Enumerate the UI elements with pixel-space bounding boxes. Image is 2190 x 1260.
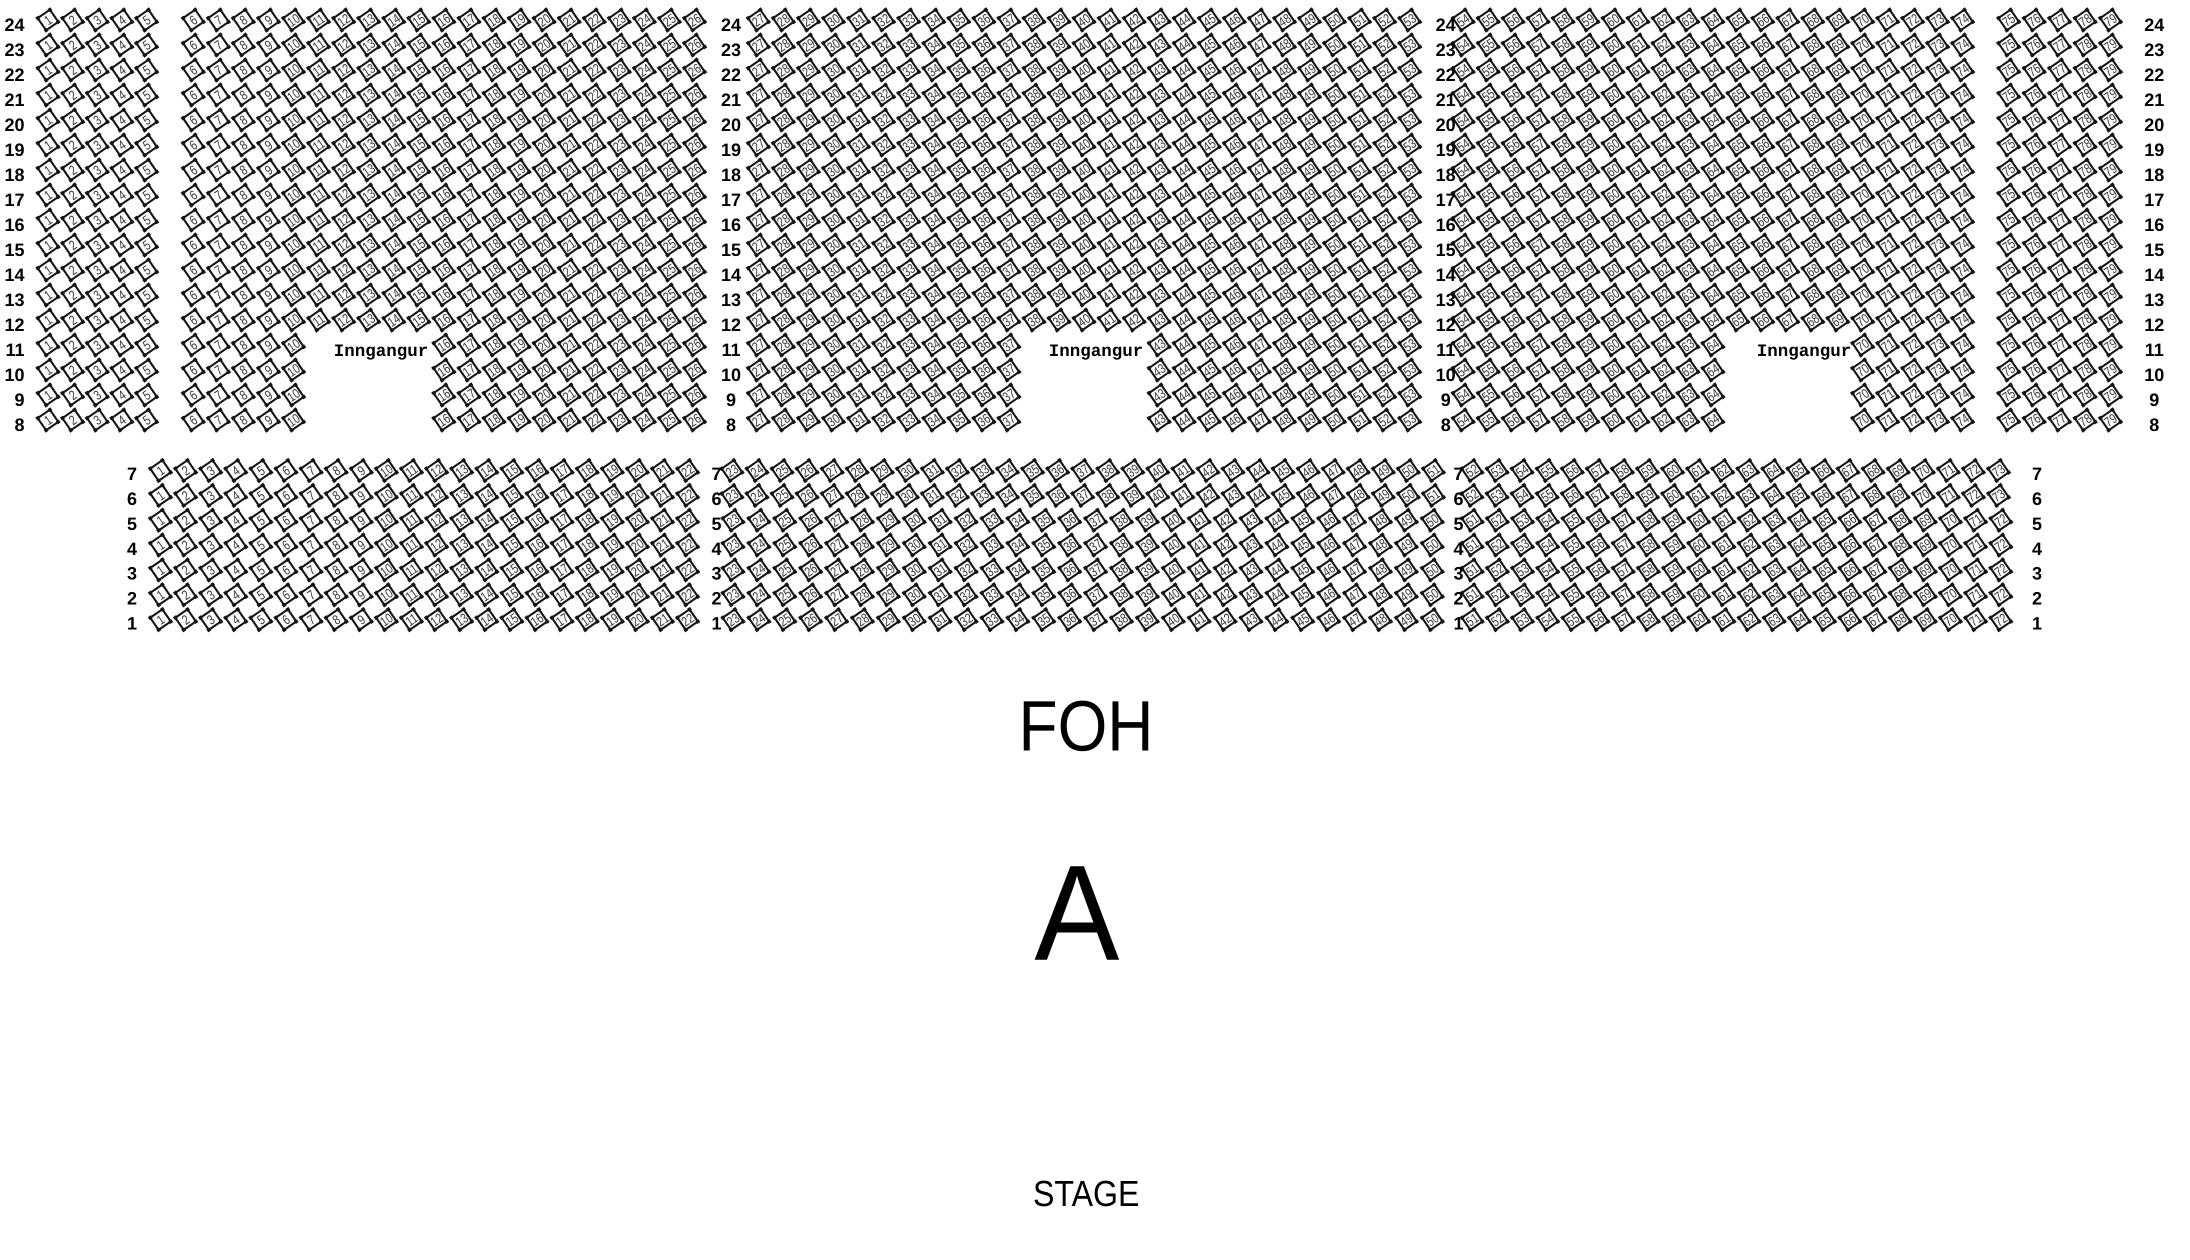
svg-text:8: 8	[726, 415, 736, 435]
svg-text:8: 8	[14, 415, 24, 435]
svg-text:17: 17	[2144, 190, 2164, 210]
svg-text:6: 6	[1453, 489, 1463, 509]
svg-text:7: 7	[711, 464, 721, 484]
svg-text:8: 8	[1441, 415, 1451, 435]
svg-text:19: 19	[1436, 140, 1456, 160]
svg-text:23: 23	[2144, 40, 2164, 60]
svg-text:Inngangur: Inngangur	[334, 342, 429, 362]
svg-text:6: 6	[127, 489, 137, 509]
svg-text:13: 13	[4, 290, 24, 310]
svg-text:24: 24	[2144, 15, 2164, 35]
svg-text:1: 1	[2032, 613, 2042, 633]
svg-text:11: 11	[1436, 340, 1455, 360]
svg-text:A: A	[1034, 837, 1119, 989]
svg-text:20: 20	[4, 115, 24, 135]
svg-text:11: 11	[5, 340, 24, 360]
svg-text:1: 1	[711, 613, 721, 633]
svg-text:13: 13	[2144, 290, 2164, 310]
svg-text:7: 7	[1453, 464, 1463, 484]
svg-text:21: 21	[2144, 90, 2164, 110]
svg-text:7: 7	[127, 464, 137, 484]
svg-text:22: 22	[4, 65, 24, 85]
svg-text:3: 3	[711, 564, 721, 584]
svg-text:15: 15	[721, 240, 741, 260]
svg-text:15: 15	[2144, 240, 2164, 260]
svg-text:15: 15	[4, 240, 24, 260]
svg-text:24: 24	[1436, 15, 1456, 35]
svg-text:13: 13	[1436, 290, 1456, 310]
svg-text:24: 24	[721, 15, 741, 35]
svg-text:19: 19	[2144, 140, 2164, 160]
svg-text:10: 10	[1436, 365, 1456, 385]
svg-text:19: 19	[4, 140, 24, 160]
svg-text:16: 16	[2144, 215, 2164, 235]
svg-text:Inngangur: Inngangur	[1757, 342, 1852, 362]
svg-text:6: 6	[2032, 489, 2042, 509]
svg-text:5: 5	[127, 514, 137, 534]
svg-text:12: 12	[4, 315, 24, 335]
svg-text:2: 2	[127, 589, 137, 609]
svg-text:15: 15	[1436, 240, 1456, 260]
svg-text:22: 22	[2144, 65, 2164, 85]
svg-text:13: 13	[721, 290, 741, 310]
svg-text:22: 22	[721, 65, 741, 85]
svg-text:11: 11	[721, 340, 740, 360]
svg-text:19: 19	[721, 140, 741, 160]
svg-text:10: 10	[4, 365, 24, 385]
svg-text:12: 12	[1436, 315, 1456, 335]
svg-text:18: 18	[2144, 165, 2164, 185]
svg-text:23: 23	[721, 40, 741, 60]
svg-text:5: 5	[1453, 514, 1463, 534]
svg-text:5: 5	[2032, 514, 2042, 534]
svg-text:20: 20	[2144, 115, 2164, 135]
svg-text:18: 18	[721, 165, 741, 185]
svg-text:14: 14	[1436, 265, 1456, 285]
svg-text:Inngangur: Inngangur	[1049, 342, 1144, 362]
svg-text:16: 16	[4, 215, 24, 235]
svg-text:18: 18	[4, 165, 24, 185]
svg-text:8: 8	[2149, 415, 2159, 435]
svg-text:12: 12	[2144, 315, 2164, 335]
svg-text:3: 3	[127, 564, 137, 584]
svg-text:24: 24	[4, 15, 24, 35]
svg-text:1: 1	[127, 613, 137, 633]
svg-text:17: 17	[1436, 190, 1456, 210]
svg-text:10: 10	[721, 365, 741, 385]
svg-text:1: 1	[1453, 613, 1463, 633]
svg-text:14: 14	[721, 265, 741, 285]
svg-text:11: 11	[2145, 340, 2164, 360]
svg-text:23: 23	[4, 40, 24, 60]
svg-text:14: 14	[4, 265, 24, 285]
svg-text:20: 20	[1436, 115, 1456, 135]
svg-text:2: 2	[2032, 589, 2042, 609]
svg-text:4: 4	[2032, 539, 2042, 559]
svg-text:2: 2	[1453, 589, 1463, 609]
svg-text:7: 7	[2032, 464, 2042, 484]
svg-text:18: 18	[1436, 165, 1456, 185]
svg-text:23: 23	[1436, 40, 1456, 60]
svg-text:12: 12	[721, 315, 741, 335]
svg-text:16: 16	[721, 215, 741, 235]
svg-text:21: 21	[4, 90, 24, 110]
svg-text:9: 9	[14, 390, 24, 410]
svg-text:FOH: FOH	[1019, 686, 1154, 766]
svg-text:5: 5	[711, 514, 721, 534]
svg-text:4: 4	[1453, 539, 1463, 559]
svg-text:3: 3	[2032, 564, 2042, 584]
svg-text:2: 2	[711, 589, 721, 609]
svg-text:21: 21	[721, 90, 741, 110]
svg-text:6: 6	[711, 489, 721, 509]
svg-text:20: 20	[721, 115, 741, 135]
svg-text:14: 14	[2144, 265, 2164, 285]
svg-text:17: 17	[721, 190, 741, 210]
svg-text:17: 17	[4, 190, 24, 210]
svg-text:22: 22	[1436, 65, 1456, 85]
svg-text:4: 4	[127, 539, 137, 559]
svg-text:9: 9	[2149, 390, 2159, 410]
svg-text:3: 3	[1453, 564, 1463, 584]
svg-text:4: 4	[711, 539, 721, 559]
svg-text:21: 21	[1436, 90, 1456, 110]
svg-text:STAGE: STAGE	[1033, 1173, 1140, 1214]
svg-text:16: 16	[1436, 215, 1456, 235]
svg-text:9: 9	[726, 390, 736, 410]
svg-text:9: 9	[1441, 390, 1451, 410]
svg-text:10: 10	[2144, 365, 2164, 385]
